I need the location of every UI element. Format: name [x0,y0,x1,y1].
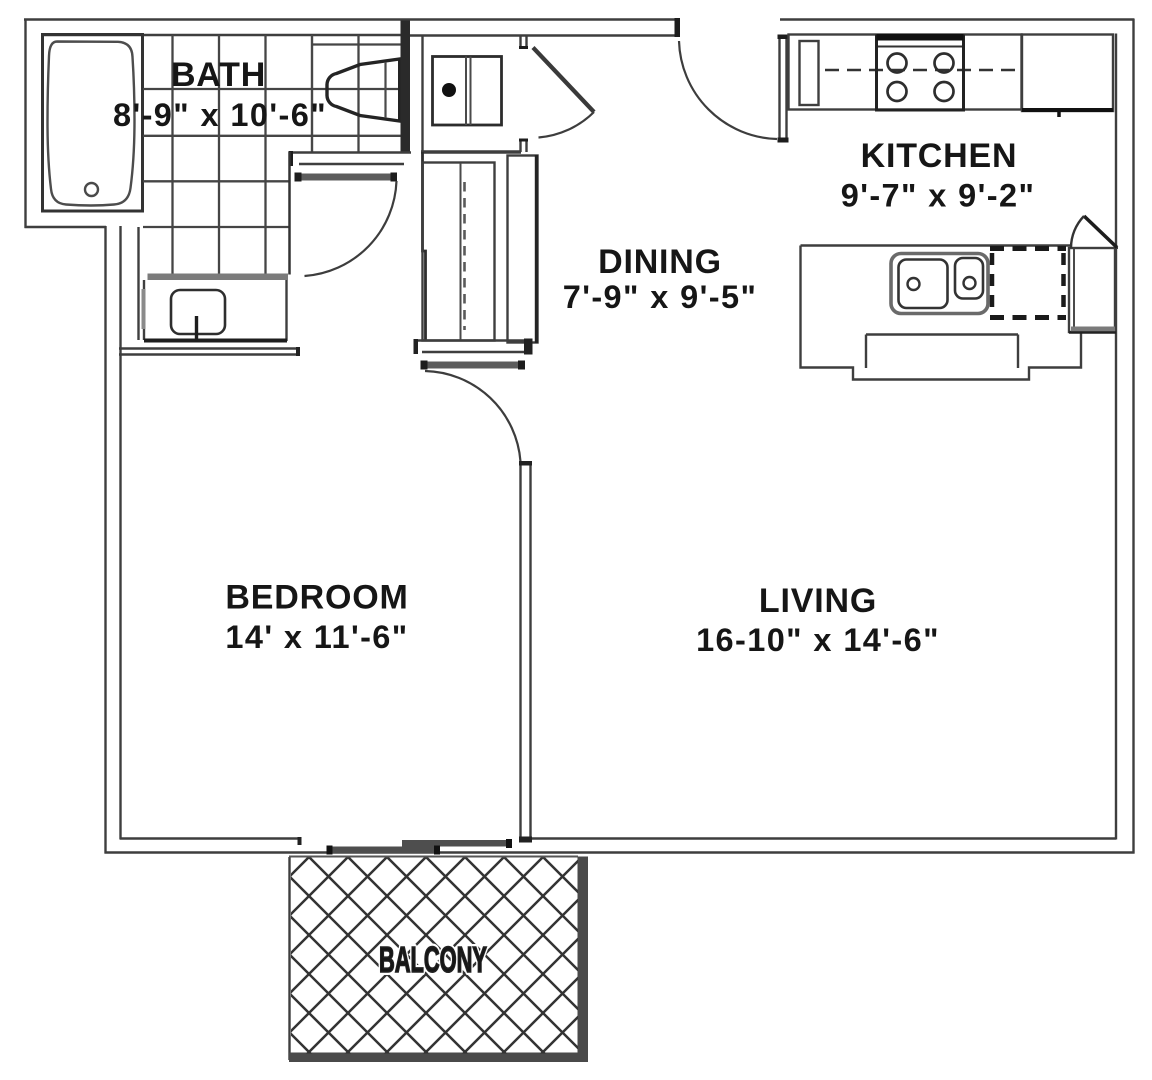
svg-text:LIVING: LIVING [759,582,877,620]
svg-text:14' x 11'-6": 14' x 11'-6" [225,619,408,655]
svg-text:8'-9" x 10'-6": 8'-9" x 10'-6" [113,97,327,133]
svg-text:9'-7" x 9'-2": 9'-7" x 9'-2" [841,178,1036,214]
svg-text:KITCHEN: KITCHEN [861,137,1018,175]
svg-text:16-10" x 14'-6": 16-10" x 14'-6" [696,622,940,658]
svg-text:BALCONY: BALCONY [379,939,487,980]
svg-text:BEDROOM: BEDROOM [225,579,408,617]
svg-text:DINING: DINING [598,243,722,281]
svg-text:BATH: BATH [171,56,266,94]
svg-text:7'-9" x 9'-5": 7'-9" x 9'-5" [563,279,758,315]
